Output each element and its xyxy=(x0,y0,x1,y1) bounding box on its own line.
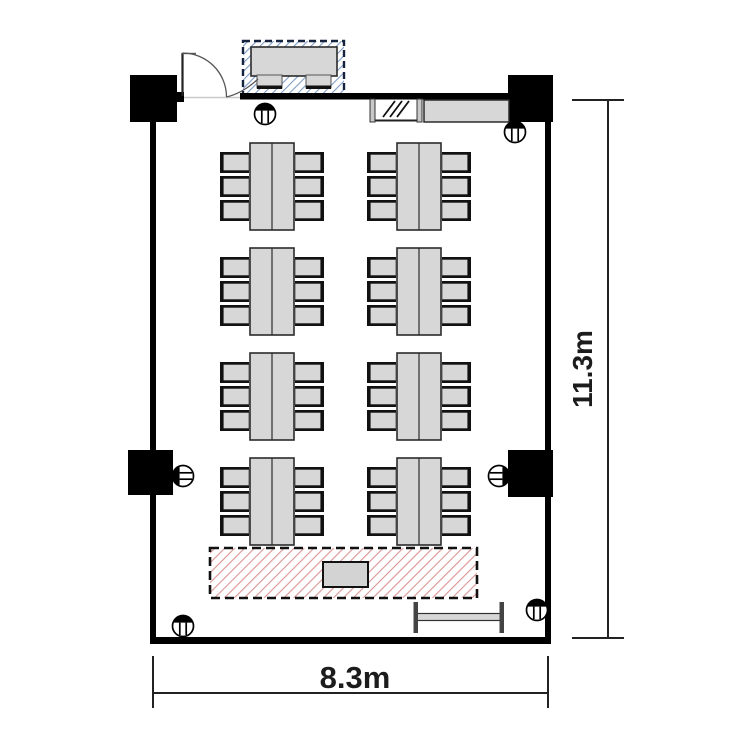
stage-podium xyxy=(323,562,368,587)
table-pair xyxy=(250,143,294,230)
wall-bottom xyxy=(150,637,551,644)
table-group xyxy=(220,458,324,545)
reception-desk xyxy=(251,47,337,76)
table-group xyxy=(367,353,471,440)
height-dimension-label: 11.3m xyxy=(567,330,598,408)
wall-left xyxy=(150,95,156,643)
speaker-icon xyxy=(172,466,193,487)
chair xyxy=(220,305,249,326)
table-pair xyxy=(250,248,294,335)
reception-chair xyxy=(257,75,282,89)
chair xyxy=(295,410,324,431)
table-group xyxy=(367,248,471,335)
table-group xyxy=(367,143,471,230)
chair xyxy=(220,491,249,512)
table-pair xyxy=(397,143,441,230)
chair xyxy=(442,305,471,326)
chair xyxy=(220,410,249,431)
chair xyxy=(367,362,396,383)
wall-top xyxy=(240,93,553,100)
reception-chair xyxy=(306,75,331,89)
speaker-icon xyxy=(505,121,526,142)
dimension-height: 11.3m xyxy=(567,100,624,638)
table-pair xyxy=(250,458,294,545)
table-pair xyxy=(397,353,441,440)
table-group xyxy=(367,458,471,545)
chair xyxy=(367,386,396,407)
chair xyxy=(295,386,324,407)
chair xyxy=(367,257,396,278)
chair xyxy=(295,491,324,512)
chair xyxy=(442,257,471,278)
table-group xyxy=(220,353,324,440)
chair xyxy=(442,176,471,197)
stage-area xyxy=(210,548,477,598)
pillar-mid-right xyxy=(508,450,553,497)
chair xyxy=(367,491,396,512)
chair xyxy=(442,410,471,431)
chair xyxy=(367,305,396,326)
chair xyxy=(295,257,324,278)
chair xyxy=(220,257,249,278)
chair xyxy=(442,362,471,383)
chair xyxy=(442,491,471,512)
chair xyxy=(295,467,324,488)
table-pair xyxy=(397,248,441,335)
chair xyxy=(367,515,396,536)
chair xyxy=(367,176,396,197)
wall-right xyxy=(545,95,551,643)
door-swing-arc xyxy=(183,53,227,97)
pillar-top-left xyxy=(130,75,177,122)
chair xyxy=(367,152,396,173)
table-pair xyxy=(250,353,294,440)
chair xyxy=(442,467,471,488)
window-partition xyxy=(370,99,422,122)
chair xyxy=(442,386,471,407)
counter-cabinet xyxy=(424,100,509,122)
chair xyxy=(295,281,324,302)
chair xyxy=(442,200,471,221)
chair xyxy=(295,362,324,383)
dimension-width: 8.3m xyxy=(153,656,548,708)
table-group xyxy=(220,248,324,335)
chair xyxy=(220,515,249,536)
chair xyxy=(220,386,249,407)
chair xyxy=(295,200,324,221)
chair xyxy=(367,410,396,431)
width-dimension-label: 8.3m xyxy=(320,660,391,695)
chair xyxy=(220,281,249,302)
chair xyxy=(442,152,471,173)
chair xyxy=(442,515,471,536)
speaker-icon xyxy=(255,103,276,124)
chair xyxy=(295,515,324,536)
chair xyxy=(295,176,324,197)
speaker-icon xyxy=(527,599,548,620)
table-pair xyxy=(397,458,441,545)
pillar-top-right xyxy=(508,75,553,122)
chair xyxy=(295,152,324,173)
folded-side-table xyxy=(414,602,505,633)
reception-area xyxy=(243,41,344,95)
chair xyxy=(220,176,249,197)
chair xyxy=(367,200,396,221)
chair xyxy=(220,362,249,383)
speaker-icon xyxy=(173,615,194,636)
floor-plan: 11.3m 8.3m xyxy=(0,0,750,750)
pillars xyxy=(128,75,553,497)
chair xyxy=(367,281,396,302)
speaker-icon xyxy=(489,466,510,487)
chair xyxy=(295,305,324,326)
table-groups xyxy=(220,143,471,545)
chair xyxy=(367,467,396,488)
pillar-mid-left xyxy=(128,450,173,495)
chair xyxy=(220,467,249,488)
floor-plan-svg: 11.3m 8.3m xyxy=(0,0,750,750)
chair xyxy=(220,200,249,221)
chair xyxy=(220,152,249,173)
chair xyxy=(442,281,471,302)
table-group xyxy=(220,143,324,230)
